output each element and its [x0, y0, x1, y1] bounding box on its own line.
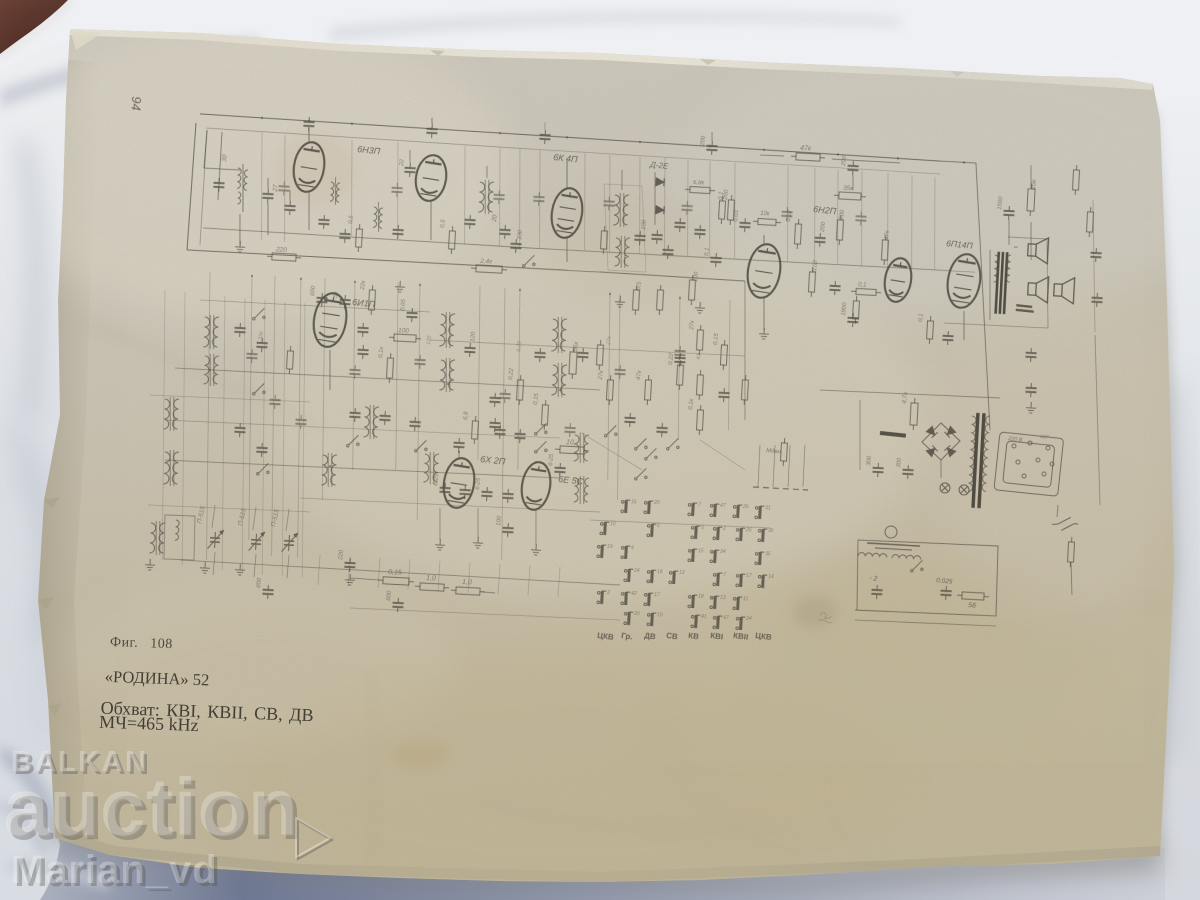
svg-text:- 2: - 2 — [869, 575, 878, 583]
svg-text:200: 200 — [700, 135, 707, 147]
svg-text:600: 600 — [310, 285, 317, 296]
svg-text:34: 34 — [720, 549, 726, 555]
svg-text:2: 2 — [606, 590, 610, 596]
svg-text:100: 100 — [398, 327, 410, 335]
svg-text:МЧ=465 kHz: МЧ=465 kHz — [99, 712, 199, 735]
svg-text:7: 7 — [698, 502, 701, 508]
svg-text:17: 17 — [746, 573, 752, 579]
svg-text:127: 127 — [1040, 434, 1049, 441]
svg-text:120: 120 — [470, 331, 477, 342]
svg-text:Гр.: Гр. — [621, 631, 633, 641]
svg-text:600: 600 — [386, 590, 393, 601]
svg-text:6,8: 6,8 — [463, 411, 470, 421]
svg-text:КВ: КВ — [688, 631, 700, 641]
svg-text:18: 18 — [698, 594, 704, 600]
svg-text:33к: 33к — [258, 331, 265, 341]
svg-text:0,22: 0,22 — [786, 209, 793, 222]
svg-text:17: 17 — [654, 592, 660, 598]
svg-text:2,4к: 2,4к — [479, 258, 493, 266]
svg-text:0,22: 0,22 — [668, 352, 675, 365]
svg-text:56: 56 — [968, 602, 977, 610]
svg-text:120: 120 — [426, 335, 433, 346]
svg-text:0,05: 0,05 — [400, 298, 407, 311]
svg-text:0,1к: 0,1к — [378, 345, 385, 358]
svg-text:0,1: 0,1 — [858, 282, 867, 288]
svg-text:0,15: 0,15 — [713, 332, 720, 345]
svg-text:220: 220 — [338, 549, 345, 561]
svg-text:31: 31 — [765, 505, 771, 511]
svg-text:20: 20 — [633, 611, 640, 617]
svg-text:47к: 47к — [800, 145, 812, 153]
svg-text:35: 35 — [765, 551, 771, 557]
svg-text:20: 20 — [653, 500, 660, 506]
svg-text:4: 4 — [631, 545, 634, 551]
svg-text:0,22: 0,22 — [508, 367, 515, 380]
svg-text:Marian_vd: Marian_vd — [11, 848, 218, 892]
svg-text:100: 100 — [693, 271, 700, 282]
svg-text:КВII: КВII — [733, 631, 749, 642]
svg-text:24: 24 — [745, 616, 752, 622]
svg-text:22: 22 — [399, 158, 406, 167]
svg-text:22к: 22к — [360, 279, 367, 291]
svg-text:0,1к: 0,1к — [688, 397, 695, 410]
svg-text:1,0: 1,0 — [426, 575, 436, 583]
svg-text:41: 41 — [701, 614, 707, 620]
svg-text:15: 15 — [698, 548, 704, 554]
svg-text:0,1: 0,1 — [718, 191, 725, 200]
svg-text:100: 100 — [496, 515, 503, 526]
svg-text:0,15: 0,15 — [388, 569, 402, 577]
svg-text:100: 100 — [641, 219, 648, 230]
svg-text:13: 13 — [720, 595, 726, 601]
svg-text:94: 94 — [128, 96, 144, 111]
svg-text:42: 42 — [631, 591, 637, 597]
svg-text:300: 300 — [866, 455, 873, 466]
svg-text:200: 200 — [841, 155, 848, 167]
svg-text:19: 19 — [607, 544, 613, 550]
svg-text:4,7к: 4,7к — [901, 391, 909, 405]
svg-text:14: 14 — [768, 574, 774, 580]
svg-text:35к: 35к — [843, 185, 855, 193]
svg-text:5: 5 — [701, 525, 704, 531]
svg-text:200: 200 — [820, 221, 827, 233]
svg-text:6,8к: 6,8к — [693, 180, 706, 187]
svg-text:7: 7 — [723, 572, 726, 578]
svg-text:27к: 27к — [598, 369, 605, 381]
svg-text:30: 30 — [221, 154, 229, 162]
svg-text:56к: 56к — [572, 340, 580, 352]
svg-text:27к: 27к — [689, 319, 696, 331]
svg-text:26: 26 — [742, 504, 749, 510]
svg-text:СВ: СВ — [666, 631, 679, 641]
svg-text:10к: 10к — [760, 211, 771, 218]
svg-text:220: 220 — [275, 246, 288, 254]
svg-text:0,5: 0,5 — [636, 281, 643, 291]
svg-text:47: 47 — [723, 615, 729, 621]
svg-text:0,02: 0,02 — [812, 259, 819, 272]
svg-text:47к: 47к — [636, 369, 643, 380]
svg-text:26: 26 — [745, 527, 752, 533]
svg-text:0,1: 0,1 — [918, 313, 925, 322]
svg-text:16: 16 — [631, 499, 637, 505]
svg-text:Фиг. 108: Фиг. 108 — [110, 635, 173, 652]
svg-text:10: 10 — [610, 521, 616, 527]
svg-text:47: 47 — [720, 503, 726, 509]
svg-text:«РОДИНА» 52: «РОДИНА» 52 — [104, 667, 209, 690]
svg-text:КВI: КВI — [710, 631, 724, 642]
svg-text:auction: auction — [5, 764, 300, 854]
svg-text:2: 2 — [722, 526, 726, 532]
svg-text:24: 24 — [633, 568, 640, 574]
svg-text:36: 36 — [768, 528, 774, 534]
svg-text:12: 12 — [679, 570, 685, 576]
svg-text:10,: 10, — [566, 439, 576, 447]
svg-text:11: 11 — [743, 596, 749, 602]
svg-text:0,1: 0,1 — [704, 247, 711, 256]
svg-text:200: 200 — [839, 209, 846, 221]
svg-text:1,0: 1,0 — [462, 579, 472, 587]
svg-text:6: 6 — [657, 523, 660, 529]
svg-text:18: 18 — [657, 569, 663, 575]
svg-text:0,5: 0,5 — [348, 215, 355, 225]
svg-text:27: 27 — [272, 184, 280, 193]
svg-text:0,15: 0,15 — [533, 392, 540, 405]
svg-text:0,03: 0,03 — [733, 209, 740, 222]
svg-text:600: 600 — [256, 577, 263, 588]
svg-text:47к: 47к — [884, 229, 891, 240]
svg-text:19: 19 — [657, 612, 663, 618]
svg-text:20: 20 — [491, 214, 499, 223]
svg-text:ДВ: ДВ — [644, 631, 657, 641]
svg-text:0,5: 0,5 — [440, 219, 447, 229]
svg-text:300: 300 — [896, 457, 903, 468]
svg-text:330: 330 — [517, 229, 524, 240]
